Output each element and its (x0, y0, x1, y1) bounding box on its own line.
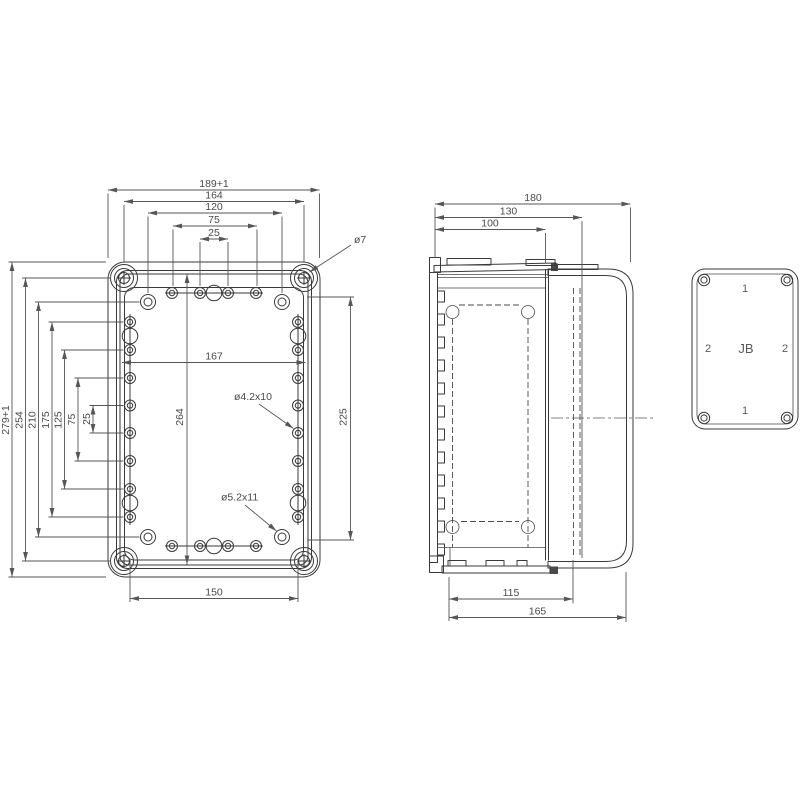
inner-hole (275, 530, 290, 545)
front-view: 189+1 164 120 75 25 ø7 (0, 178, 366, 602)
dim-top-row-75: 75 (173, 214, 257, 286)
dim-label: 25 (208, 227, 220, 239)
floor-clip (486, 561, 504, 567)
floor-clip (448, 561, 466, 567)
note-bottom-hole: ø5.2x11 (221, 492, 277, 532)
lid-clip (526, 260, 555, 266)
note-label: ø4.2x10 (234, 391, 272, 403)
dim-label: 180 (524, 192, 542, 204)
dim-label: 164 (205, 190, 223, 202)
seal-section-bottom (550, 567, 558, 575)
cover-label-top: 1 (742, 283, 748, 295)
dim-label: 264 (174, 408, 186, 426)
dim-label: 130 (500, 206, 518, 218)
lid-section (434, 263, 556, 272)
seal-groove-inner (120, 274, 308, 565)
cover-label-right: 2 (782, 343, 788, 355)
seal-groove-outer (117, 271, 312, 569)
side-view: 180 130 100 115 165 (430, 192, 657, 622)
technical-drawing: 189+1 164 120 75 25 ø7 (0, 0, 800, 800)
joint-line (546, 269, 549, 561)
bottom-hole-row (165, 538, 263, 554)
cover-view: 1 2 JB 2 1 (692, 269, 798, 429)
cover-screw (781, 412, 792, 423)
cover-shell-wall (548, 269, 633, 568)
inner-corner-holes (141, 295, 290, 545)
dim-label: 165 (529, 606, 547, 618)
dim-depth-100: 100 (435, 218, 546, 264)
box-floor-section (442, 566, 550, 573)
dim-label: 150 (205, 587, 223, 599)
cover-screw (698, 412, 709, 423)
cover-screw (781, 274, 792, 285)
hidden-wall-lines (574, 288, 581, 558)
technical-drawing-page: 189+1 164 120 75 25 ø7 (0, 0, 800, 800)
dim-label: 167 (205, 351, 223, 363)
dim-col-75: 75 (66, 378, 124, 461)
dim-label: 25 (81, 413, 93, 425)
dim-label: 279+1 (0, 405, 12, 435)
dim-label: 75 (208, 214, 220, 226)
cover-label-bottom: 1 (742, 405, 748, 417)
dim-col-25: 25 (81, 406, 124, 434)
inner-hole (275, 295, 290, 310)
floor-corner-block (430, 556, 444, 573)
note-corner-hole: ø7 (310, 234, 367, 272)
dim-label: 189+1 (199, 178, 229, 190)
dim-top-row-25: 25 (200, 227, 228, 286)
inner-hole (141, 530, 156, 545)
cover-label-center: JB (738, 341, 753, 356)
dim-label: 120 (205, 201, 223, 213)
corner-screw-top-right (291, 265, 318, 292)
note-label: ø7 (354, 234, 366, 246)
dim-inner-width: 167 (122, 351, 306, 363)
cover-label-left: 2 (705, 343, 711, 355)
dim-label: 75 (66, 414, 78, 426)
cover-screw (698, 274, 709, 285)
dim-label: 225 (338, 408, 350, 426)
dim-label: 254 (14, 411, 26, 429)
dim-inner-height: 264 (174, 274, 187, 565)
interior-lines (438, 288, 546, 566)
dim-label: 100 (481, 218, 499, 230)
note-side-hole: ø4.2x10 (234, 391, 294, 429)
corner-screw-bottom-left (111, 548, 138, 575)
dim-label: 210 (27, 411, 39, 429)
floor-clip (517, 561, 527, 567)
note-label: ø5.2x11 (221, 492, 258, 504)
enclosure-body (108, 262, 320, 577)
dim-label: 175 (40, 411, 52, 429)
box-left-wall (430, 273, 438, 563)
hidden-hole (446, 306, 459, 319)
hidden-hole (522, 306, 535, 319)
outer-wall (108, 262, 320, 577)
dim-depth-overall: 180 (435, 192, 631, 262)
dim-label: 115 (503, 587, 520, 599)
corner-screws (111, 265, 318, 575)
inner-hole (141, 295, 156, 310)
corner-screw-top-left (111, 265, 138, 292)
box-rim-lines (438, 275, 549, 278)
dim-label: 125 (53, 411, 65, 429)
inner-wall (125, 288, 304, 561)
dim-right-height: 225 (307, 297, 354, 540)
corner-screw-bottom-right (291, 548, 318, 575)
wall-bosses (438, 291, 445, 555)
dim-depth-165: 165 (449, 572, 626, 622)
hidden-compartment (446, 305, 535, 548)
